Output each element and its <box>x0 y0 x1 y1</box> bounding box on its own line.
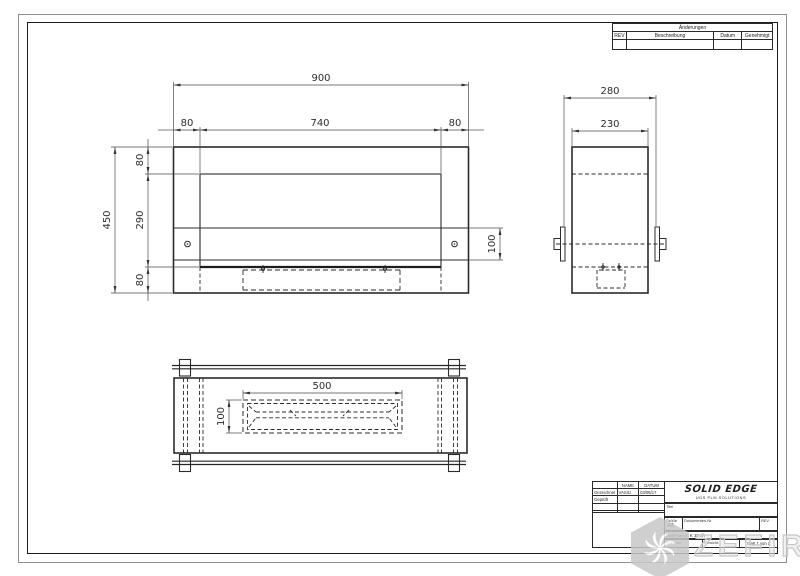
front-view <box>174 147 469 293</box>
front-view-dimensions <box>111 82 503 301</box>
side-view-dimensions <box>564 95 656 226</box>
dim-front-overall-height: 450 <box>102 210 113 229</box>
approval-name-header: NAME <box>617 482 638 489</box>
solid-edge-logo: SOLID EDGE <box>664 484 777 495</box>
logo-subtitle: UGS PLM SOLUTIONS <box>665 496 777 500</box>
dim-front-opening-height: 290 <box>135 210 146 229</box>
approval-row-label: Gezeichnet <box>593 489 618 496</box>
dim-front-right-offset: 80 <box>449 118 462 129</box>
dim-front-left-offset: 80 <box>181 118 194 129</box>
zefire-logo-icon <box>631 517 689 576</box>
dim-front-bottom-offset: 80 <box>135 274 146 287</box>
revision-col-approved: Genehmigt <box>742 32 773 40</box>
approval-row-name <box>617 496 638 503</box>
approval-row-date: 03/05/17 <box>639 489 665 496</box>
dim-bottom-burner-width: 100 <box>216 407 227 426</box>
dim-bottom-burner-length: 500 <box>312 381 331 392</box>
dim-front-strip-height: 100 <box>487 234 498 253</box>
revision-table-title: Änderungen <box>613 24 773 32</box>
approval-row-label: Geprüft <box>593 496 618 503</box>
dim-front-top-offset: 80 <box>135 154 146 167</box>
rev-field-label: REV <box>761 518 769 523</box>
approval-row-name: VASILI <box>617 489 638 496</box>
revision-col-description: Beschreibung <box>626 32 713 40</box>
dim-front-overall-width: 900 <box>311 73 330 84</box>
revision-col-date: Datum <box>714 32 742 40</box>
dim-side-body-depth: 230 <box>600 119 619 130</box>
logo-box: SOLID EDGE UGS PLM SOLUTIONS <box>664 481 778 503</box>
approval-row-date <box>639 496 665 503</box>
revision-col-rev: REV <box>613 32 627 40</box>
title-field-label: Titel <box>666 504 673 509</box>
zefire-watermark-text: ZEFIRE <box>694 528 800 564</box>
bottom-view-dimensions <box>226 390 402 433</box>
approval-date-header: DATUM <box>639 482 665 489</box>
title-field: Titel <box>664 503 778 517</box>
dim-front-opening-width: 740 <box>310 118 329 129</box>
side-view <box>554 147 666 293</box>
revision-table: Änderungen REV Beschreibung Datum Genehm… <box>612 23 773 50</box>
drawing-sheet: 900 80 740 80 450 80 290 80 100 <box>0 0 800 576</box>
dim-side-overall-depth: 280 <box>600 86 619 97</box>
